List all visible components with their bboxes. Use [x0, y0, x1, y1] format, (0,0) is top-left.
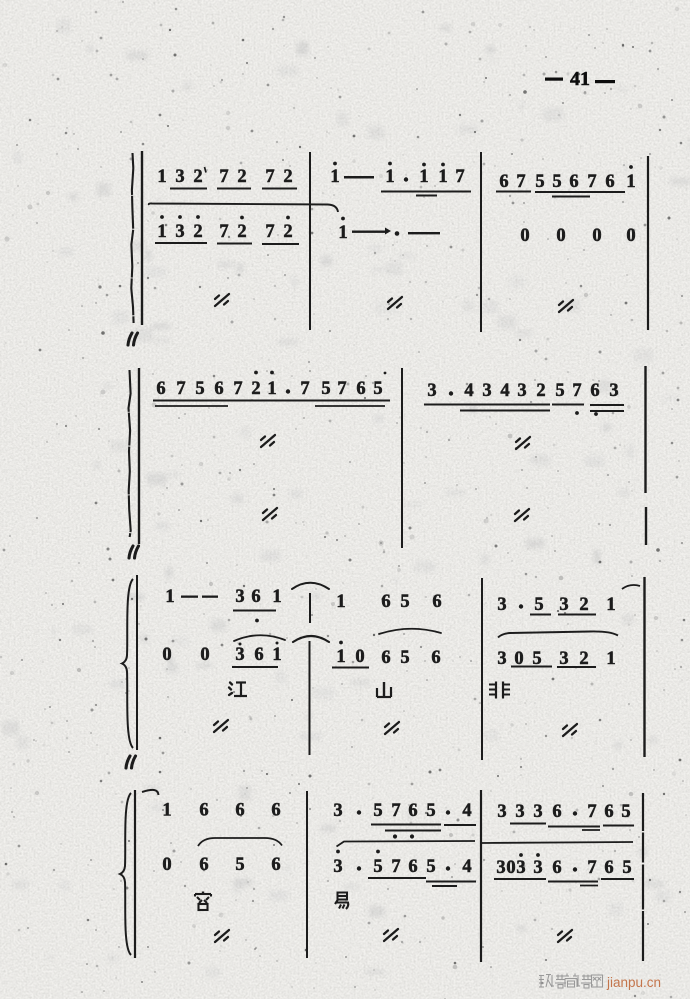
- svg-text:3: 3: [497, 595, 506, 615]
- svg-text:1327272: 1327272: [157, 222, 292, 242]
- svg-text:1: 1: [336, 592, 345, 612]
- svg-text:3: 3: [333, 857, 342, 877]
- svg-text:3: 3: [427, 381, 436, 401]
- svg-text:765: 765: [587, 802, 630, 822]
- svg-text:4343257: 4343257: [464, 381, 581, 401]
- svg-text:361: 361: [235, 587, 281, 607]
- svg-text:4: 4: [462, 857, 471, 877]
- svg-text:1: 1: [165, 587, 174, 607]
- svg-text:41: 41: [570, 68, 590, 90]
- svg-text:30: 30: [496, 858, 515, 878]
- svg-text:765: 765: [587, 858, 631, 878]
- svg-text:336: 336: [516, 858, 561, 878]
- svg-text:1: 1: [338, 223, 347, 243]
- svg-text:1: 1: [330, 167, 339, 187]
- svg-text:jianpu.cn: jianpu.cn: [606, 975, 661, 990]
- svg-text:4: 4: [462, 801, 471, 821]
- svg-text:3: 3: [333, 801, 342, 821]
- svg-text:1327272: 1327272: [157, 167, 292, 187]
